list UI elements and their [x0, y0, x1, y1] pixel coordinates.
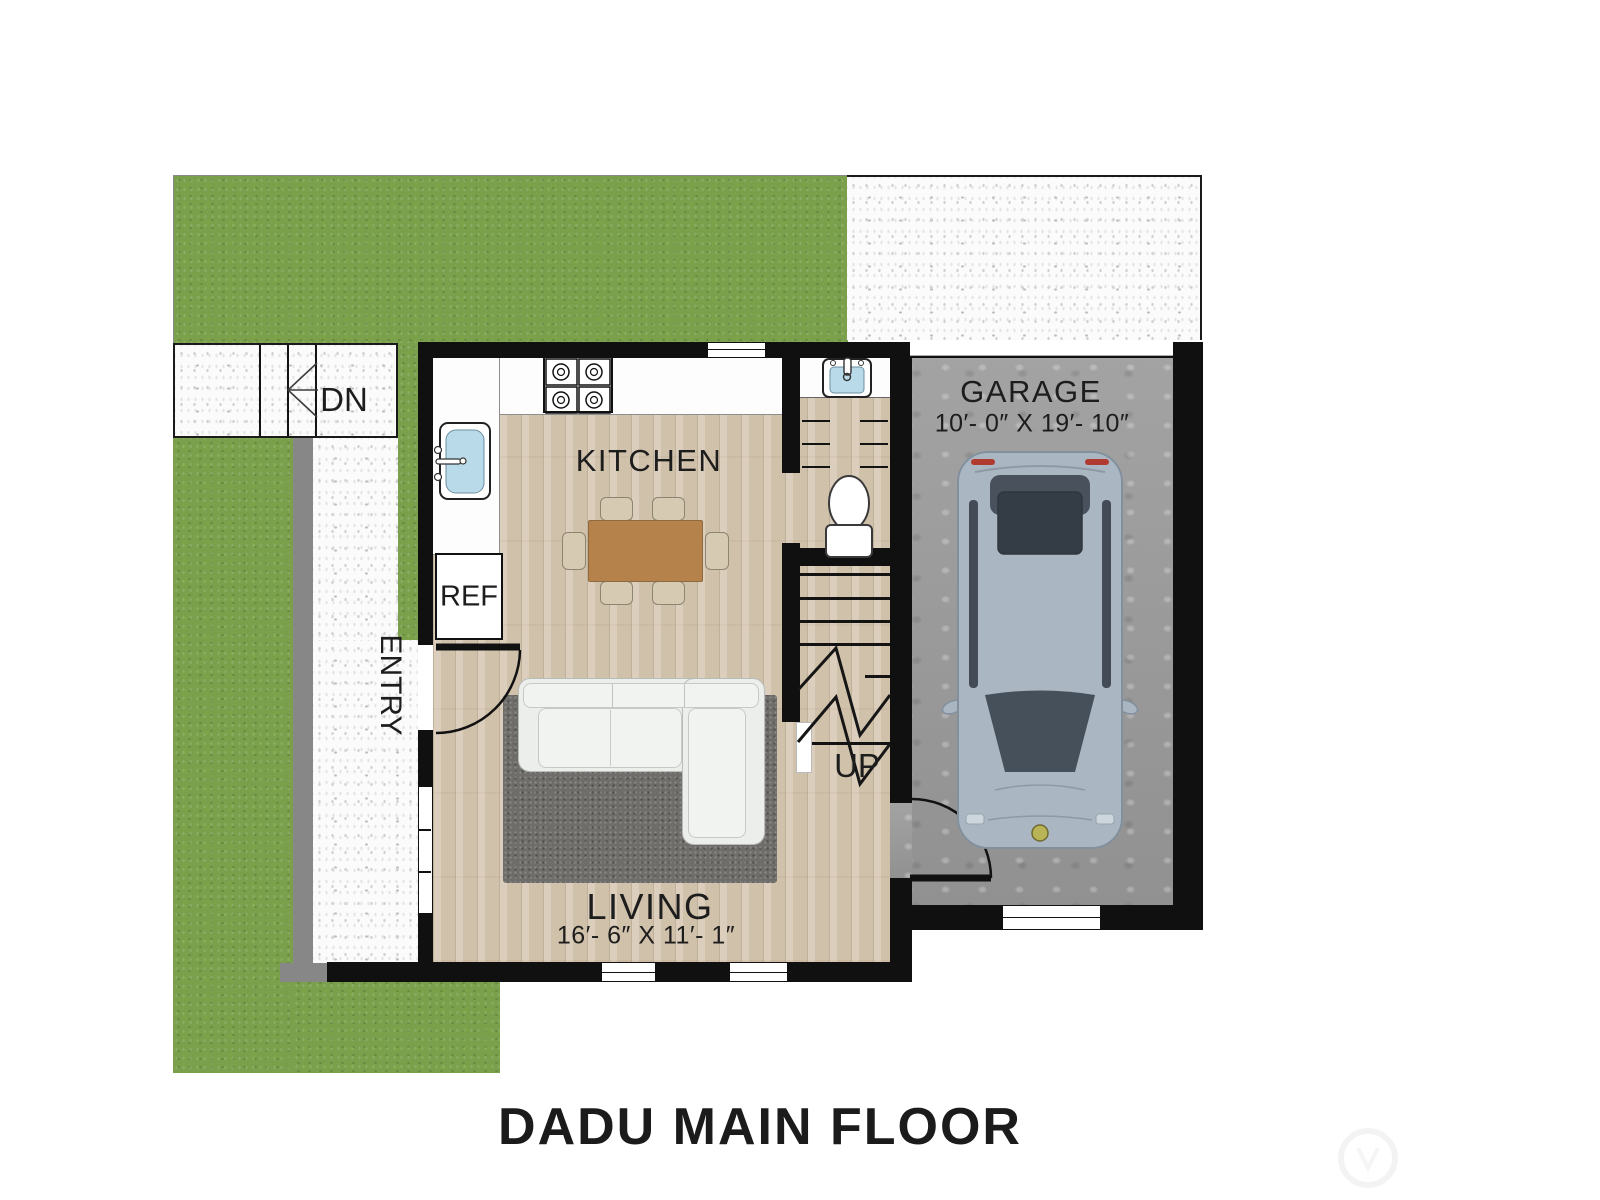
stair-tread-stub	[860, 443, 888, 445]
window-mullion	[730, 972, 787, 973]
dining-chair	[705, 532, 729, 570]
up-stair-tread	[800, 643, 890, 646]
sofa-cushion-divider	[612, 684, 613, 707]
retaining-edge-corner	[280, 963, 327, 982]
window-mullion	[602, 972, 655, 973]
powder-vanity-counter	[800, 358, 890, 398]
wall-garage-west	[890, 878, 912, 982]
window-mullion	[708, 349, 765, 350]
up-stair-tread	[800, 620, 890, 623]
garage-dimensions: 10′- 0″ X 19′- 10″	[935, 410, 1130, 439]
sofa-cushion-divider	[610, 710, 611, 766]
up-stair-tread	[800, 597, 890, 600]
kitchen-window-north	[708, 342, 765, 358]
up-stair-tread	[800, 573, 890, 576]
sofa-back-cushions	[523, 683, 759, 708]
floor-plan-canvas: KITCHEN LIVING 16′- 6″ X 11′- 1″ GARAGE …	[0, 0, 1600, 1200]
dn-stair-tread	[259, 345, 261, 436]
window-mullion	[419, 871, 431, 873]
dining-chair	[600, 497, 633, 521]
dn-stair-tread	[315, 345, 317, 436]
grass-left	[173, 343, 293, 1073]
stair-tread-stub	[802, 466, 830, 468]
living-window-south	[602, 962, 655, 982]
garage-window-south	[1003, 905, 1100, 930]
grass-strip-right-of-walk	[398, 343, 418, 640]
garage-door-opening	[910, 342, 1173, 356]
garage-door-opening-interior	[890, 803, 912, 878]
wall-east	[1173, 342, 1203, 930]
dining-chair	[600, 581, 633, 605]
wall-interior-hall	[782, 358, 800, 473]
wall-garage-west	[890, 353, 912, 803]
living-window-south-2	[730, 962, 787, 982]
dn-stair-tread	[287, 345, 289, 436]
up-stair-tread	[810, 742, 890, 745]
stair-tread-stub	[860, 420, 888, 422]
wall-powder-divider	[800, 548, 890, 566]
stairs-up-label: UP	[834, 747, 880, 785]
entry-label: ENTRY	[373, 634, 407, 735]
window-mullion	[1003, 917, 1100, 918]
grass-top	[173, 175, 848, 344]
garage-label: GARAGE	[960, 374, 1102, 410]
wall-interior-hall	[782, 543, 800, 722]
dining-chair	[652, 497, 685, 521]
dining-chair	[652, 581, 685, 605]
stairs-down-label: DN	[320, 381, 368, 419]
stair-tread-stub	[860, 466, 888, 468]
sofa-cushion-divider	[684, 684, 685, 707]
living-dimensions: 16′- 6″ X 11′- 1″	[557, 922, 735, 951]
plan-title: DADU MAIN FLOOR	[498, 1097, 1022, 1157]
wall-west	[418, 342, 433, 645]
dining-chair	[562, 532, 586, 570]
stair-tread-stub	[802, 420, 830, 422]
kitchen-counter-left	[433, 358, 500, 555]
dining-table	[588, 520, 703, 582]
range-stove	[543, 356, 613, 413]
window-mullion	[419, 829, 431, 831]
walkway-vertical-upper	[313, 438, 398, 640]
refrigerator-label: REF	[440, 581, 498, 614]
watermark-logo	[1341, 1131, 1395, 1185]
driveway	[847, 175, 1202, 340]
living-window-west	[418, 787, 433, 913]
wall-west	[418, 730, 433, 787]
up-stair-tread	[865, 675, 890, 678]
kitchen-label: KITCHEN	[576, 443, 723, 479]
retaining-edge	[293, 438, 313, 963]
sofa-chaise-cushion	[688, 708, 746, 838]
stair-tread-stub	[802, 443, 830, 445]
hall-opening-marker	[796, 722, 812, 773]
